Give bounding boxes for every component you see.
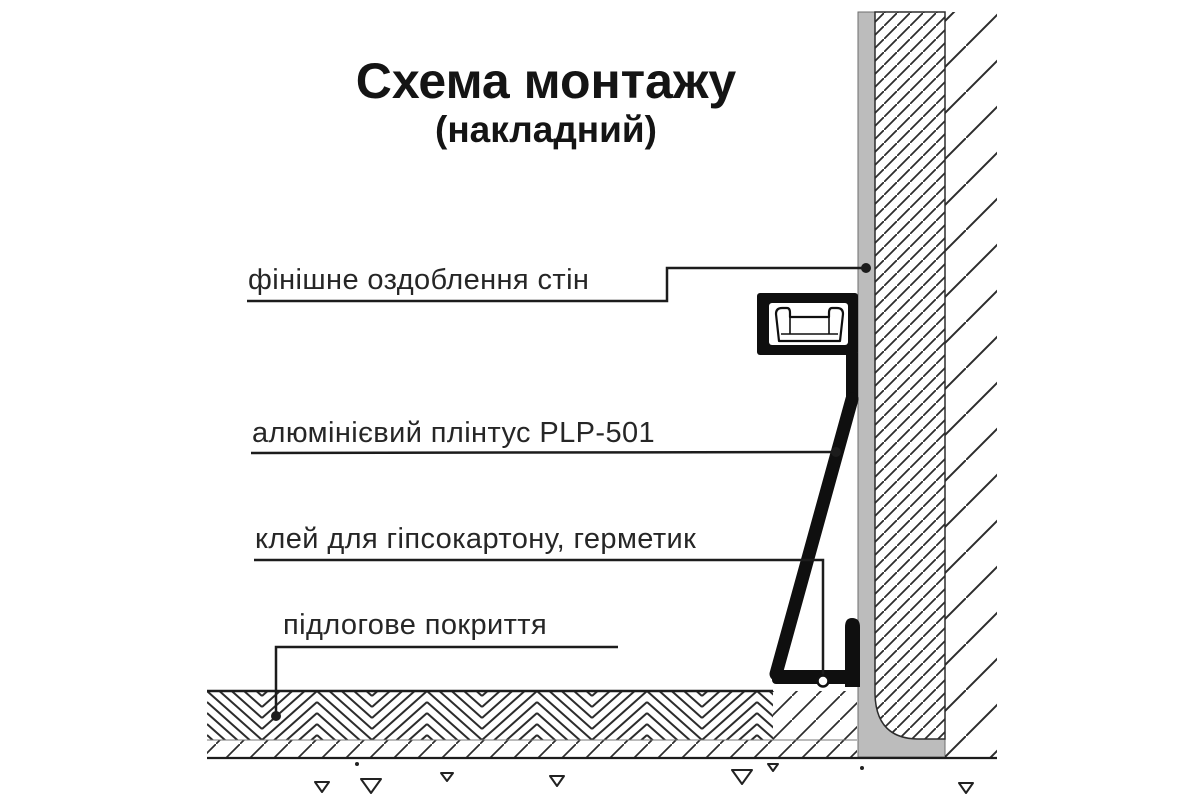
plinth-rear-hook	[845, 618, 860, 687]
wall-section	[858, 12, 997, 757]
diagram-canvas: Схема монтажу (накладний) фінішне оздобл…	[0, 0, 1200, 800]
leader-dot-wall-finish	[861, 263, 871, 273]
plinth-profile	[757, 293, 860, 687]
floor-pocket-hatch	[773, 691, 857, 758]
label-floor: підлогове покриття	[283, 609, 547, 641]
leader-bead-glue	[818, 676, 829, 687]
plinth-front-face	[776, 399, 852, 674]
label-glue: клей для гіпсокартону, герметик	[255, 523, 696, 555]
drywall-hatch-block	[875, 12, 945, 739]
diagram-subtitle: (накладний)	[435, 109, 657, 150]
installation-scheme-diagram: Схема монтажу (накладний) фінішне оздобл…	[0, 0, 1200, 800]
subfloor-dot-mark	[860, 766, 864, 770]
label-plinth: алюмінієвий плінтус PLP-501	[252, 417, 655, 449]
label-wall-finish: фінішне оздоблення стін	[248, 264, 589, 296]
leader-plinth	[251, 452, 834, 453]
diagram-title: Схема монтажу	[356, 53, 737, 109]
screed-hatch-band	[207, 740, 773, 758]
floor-covering-hatch	[207, 691, 773, 740]
leader-dot-plinth	[831, 447, 841, 457]
subfloor-dot-mark	[355, 762, 359, 766]
leader-dot-floor	[271, 711, 281, 721]
subfloor-triangle-marks	[315, 764, 973, 793]
masonry-hatch-band	[945, 12, 997, 757]
